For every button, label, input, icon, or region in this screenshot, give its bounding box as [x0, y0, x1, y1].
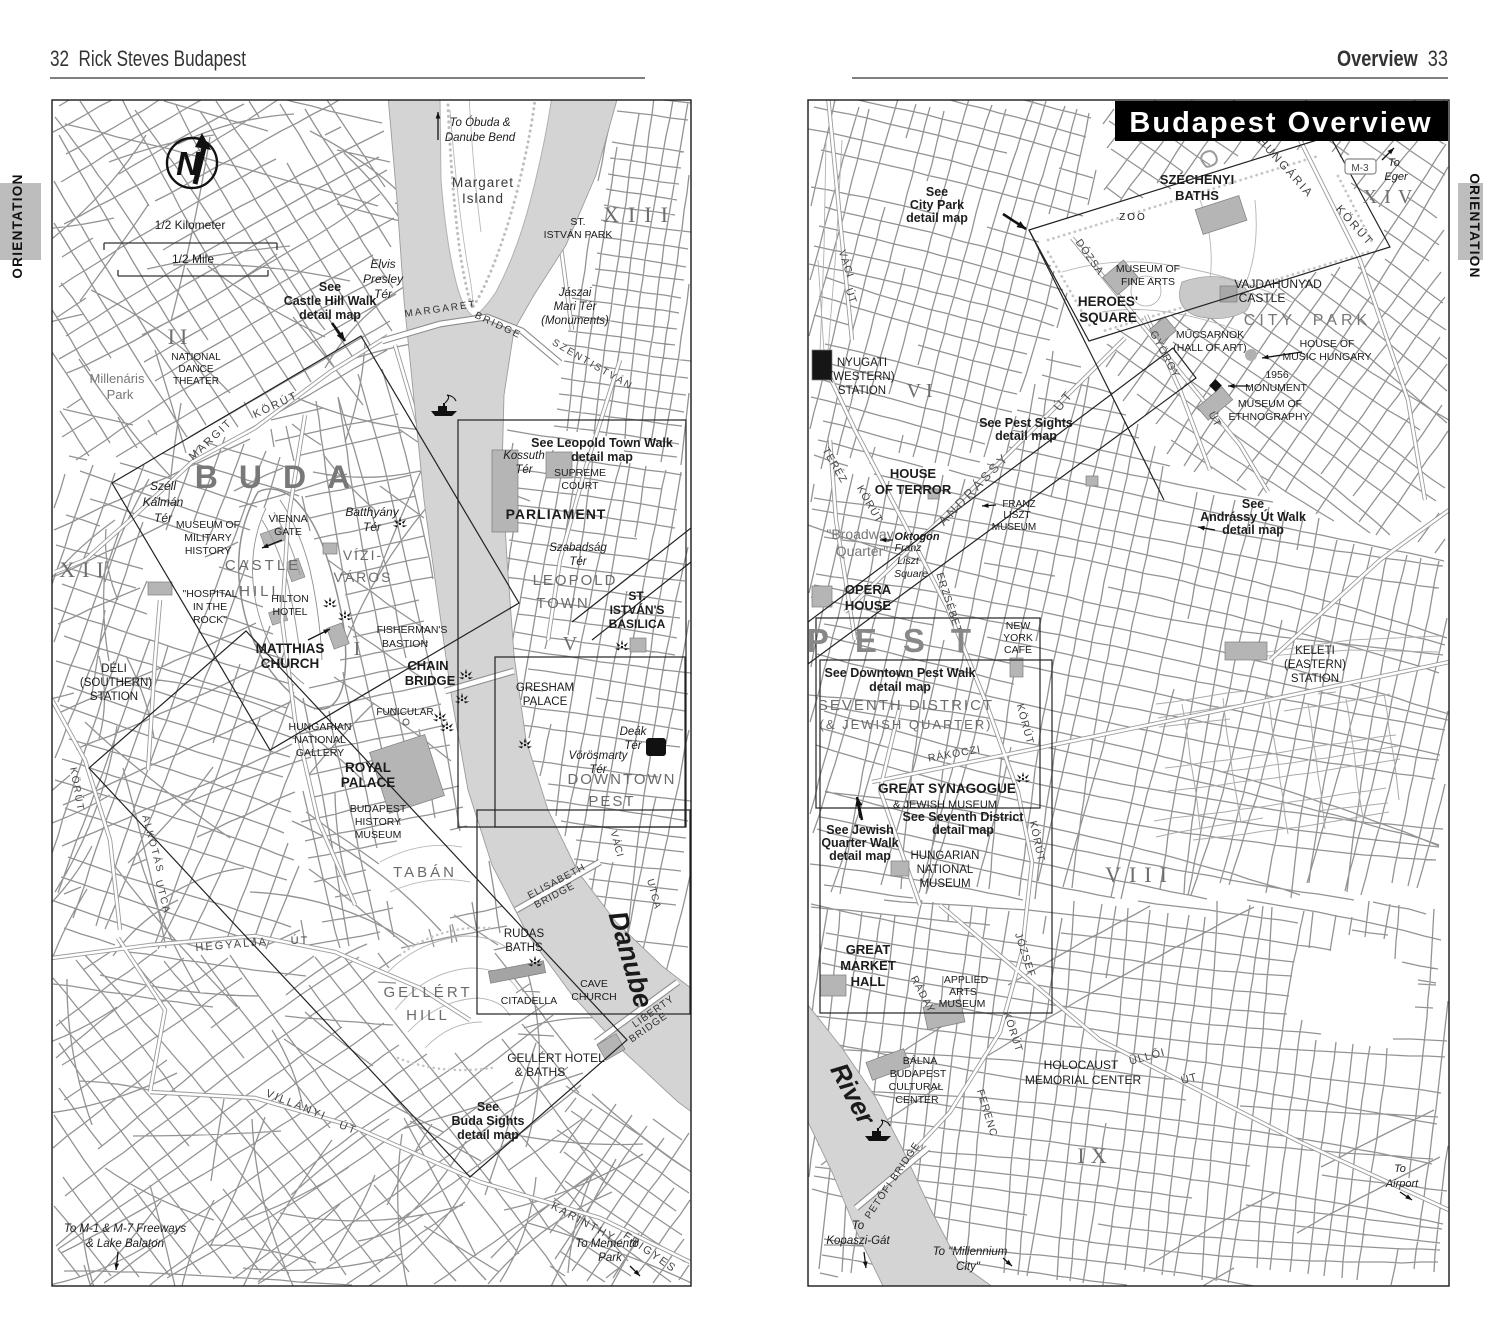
svg-text:BÁLNA: BÁLNA — [903, 1054, 937, 1067]
svg-text:CHURCH: CHURCH — [571, 991, 617, 1003]
svg-text:HUNGARIAN: HUNGARIAN — [910, 850, 979, 862]
svg-text:HILL: HILL — [406, 1007, 450, 1024]
svg-text:NEW: NEW — [1006, 620, 1031, 632]
svg-text:HOTEL: HOTEL — [272, 606, 307, 618]
svg-text:HALL: HALL — [851, 974, 886, 989]
svg-text:detail map: detail map — [906, 211, 968, 225]
svg-text:CAVE: CAVE — [580, 978, 608, 990]
svg-text:ST.: ST. — [628, 589, 645, 603]
svg-text:MUSEUM: MUSEUM — [939, 998, 986, 1010]
svg-text:VAJDAHUNYAD: VAJDAHUNYAD — [1234, 277, 1322, 291]
svg-text:BASILICA: BASILICA — [609, 617, 666, 631]
svg-text:detail map: detail map — [1222, 523, 1284, 537]
svg-text:XIII: XIII — [603, 202, 677, 227]
svg-text:(Monuments): (Monuments) — [541, 315, 609, 327]
svg-text:GRESHAM: GRESHAM — [516, 682, 574, 694]
svg-text:To "Millennium: To "Millennium — [933, 1246, 1008, 1258]
svg-text:BUDAPEST: BUDAPEST — [890, 1068, 947, 1080]
svg-text:1956: 1956 — [1265, 369, 1289, 381]
svg-text:BUDA: BUDA — [195, 459, 371, 495]
svg-text:TOWN: TOWN — [536, 595, 590, 612]
svg-text:FUNICULAR: FUNICULAR — [376, 707, 433, 718]
svg-text:HOUSE OF: HOUSE OF — [1300, 338, 1355, 350]
svg-text:detail map: detail map — [829, 849, 891, 863]
svg-text:BASTION: BASTION — [382, 638, 428, 650]
svg-text:1/2 Mile: 1/2 Mile — [172, 252, 214, 266]
svg-text:See Seventh District: See Seventh District — [903, 810, 1025, 824]
svg-text:VI: VI — [906, 380, 937, 402]
svg-text:See: See — [1242, 497, 1264, 511]
svg-text:STATION: STATION — [90, 691, 138, 703]
svg-text:VÍZI-: VÍZI- — [343, 547, 383, 563]
svg-text:OF TERROR: OF TERROR — [875, 482, 952, 497]
svg-text:& Lake Balaton: & Lake Balaton — [86, 1238, 164, 1250]
svg-text:Jászai: Jászai — [558, 287, 592, 299]
svg-text:APPLIED: APPLIED — [944, 974, 989, 986]
svg-text:(EASTERN): (EASTERN) — [1284, 659, 1346, 671]
svg-text:Kossuth: Kossuth — [503, 450, 545, 462]
svg-text:MUSEUM OF: MUSEUM OF — [1116, 263, 1180, 275]
svg-text:ARTS: ARTS — [949, 986, 977, 998]
svg-text:(SOUTHERN): (SOUTHERN) — [80, 677, 152, 689]
svg-text:Budapest Overview: Budapest Overview — [1129, 107, 1432, 139]
svg-text:PALACE: PALACE — [341, 775, 396, 790]
svg-text:Liszt: Liszt — [897, 555, 920, 567]
svg-text:See: See — [477, 1100, 499, 1114]
svg-text:ROCK": ROCK" — [193, 614, 227, 626]
svg-text:Vörösmarty: Vörösmarty — [569, 750, 629, 762]
svg-text:To Memento: To Memento — [575, 1238, 639, 1250]
svg-text:CITY: CITY — [1244, 312, 1296, 329]
svg-text:M-3: M-3 — [1351, 163, 1369, 174]
svg-text:detail map: detail map — [299, 308, 361, 322]
svg-text:V: V — [563, 633, 578, 655]
svg-text:HUNGARIAN: HUNGARIAN — [288, 721, 351, 733]
svg-text:STATION: STATION — [1291, 673, 1339, 685]
svg-text:GELLÉRT: GELLÉRT — [383, 984, 472, 1001]
svg-text:MEMORIAL CENTER: MEMORIAL CENTER — [1025, 1073, 1142, 1087]
svg-text:GATE: GATE — [274, 526, 302, 538]
svg-text:MARKET: MARKET — [840, 958, 896, 973]
svg-text:1/2 Kilometer: 1/2 Kilometer — [155, 218, 226, 232]
svg-text:Kálmán: Kálmán — [143, 495, 184, 509]
svg-text:MUSEUM OF: MUSEUM OF — [1238, 398, 1302, 410]
svg-text:To: To — [1388, 157, 1400, 169]
svg-text:See: See — [319, 280, 341, 294]
svg-text:MUSEUM: MUSEUM — [992, 522, 1036, 533]
svg-text:THEATER: THEATER — [173, 376, 219, 387]
svg-text:FINE ARTS: FINE ARTS — [1121, 276, 1175, 288]
svg-text:(HALL OF ART): (HALL OF ART) — [1173, 342, 1247, 354]
svg-text:MUSEUM OF: MUSEUM OF — [176, 519, 240, 531]
svg-text:CHAIN: CHAIN — [407, 658, 448, 673]
svg-text:BATHS: BATHS — [1175, 188, 1219, 203]
svg-text:To: To — [852, 1220, 865, 1232]
svg-text:Park: Park — [598, 1252, 623, 1264]
svg-text:detail map: detail map — [995, 429, 1057, 443]
svg-text:32 Rick Steves Budapest: 32 Rick Steves Budapest — [50, 46, 246, 71]
svg-text:ORIENTATION: ORIENTATION — [10, 173, 25, 278]
svg-text:FISHERMAN'S: FISHERMAN'S — [377, 624, 448, 636]
svg-text:detail map: detail map — [571, 450, 633, 464]
svg-text:Kopaszi-Gát: Kopaszi-Gát — [826, 1235, 890, 1247]
svg-text:CENTER: CENTER — [895, 1094, 939, 1106]
svg-text:(& JEWISH QUARTER): (& JEWISH QUARTER) — [820, 717, 993, 732]
svg-text:HOUSE: HOUSE — [890, 466, 937, 481]
svg-text:BUDAPEST: BUDAPEST — [350, 803, 407, 815]
svg-text:I: I — [354, 638, 361, 660]
svg-text:Andrássy Út Walk: Andrássy Út Walk — [1200, 509, 1306, 524]
svg-text:LISZT: LISZT — [1003, 510, 1030, 521]
svg-text:OPERA: OPERA — [845, 582, 892, 597]
svg-text:ETHNOGRAPHY: ETHNOGRAPHY — [1228, 411, 1309, 423]
svg-text:Eger: Eger — [1384, 171, 1409, 183]
svg-text:STATION: STATION — [838, 385, 886, 397]
svg-text:Quarter Walk: Quarter Walk — [821, 836, 898, 850]
svg-text:GREAT SYNAGOGUE: GREAT SYNAGOGUE — [878, 781, 1016, 796]
svg-text:XII: XII — [59, 557, 111, 582]
svg-text:ZOO: ZOO — [1119, 212, 1147, 223]
svg-text:& BATHS: & BATHS — [515, 1065, 565, 1079]
svg-text:Island: Island — [462, 191, 504, 206]
svg-text:SZÉCHENYI: SZÉCHENYI — [1160, 172, 1234, 187]
svg-text:HOUSE: HOUSE — [845, 598, 892, 613]
svg-text:VIII: VIII — [1105, 862, 1175, 887]
svg-text:TABÁN: TABÁN — [393, 864, 457, 881]
svg-text:COURT: COURT — [561, 480, 599, 492]
svg-text:KELETI: KELETI — [1295, 645, 1335, 657]
svg-text:To M-1 & M-7 Freeways: To M-1 & M-7 Freeways — [64, 1223, 187, 1235]
svg-text:IN THE: IN THE — [193, 601, 227, 613]
svg-text:CULTURAL: CULTURAL — [889, 1081, 944, 1093]
svg-text:See Pest Sights: See Pest Sights — [979, 416, 1073, 430]
svg-text:ORIENTATION: ORIENTATION — [1467, 173, 1482, 278]
svg-text:Deák: Deák — [620, 726, 648, 738]
svg-text:Elvis: Elvis — [370, 257, 395, 271]
svg-text:City": City" — [956, 1261, 981, 1273]
svg-text:SQUARE: SQUARE — [1079, 310, 1137, 325]
svg-text:Danube Bend: Danube Bend — [445, 132, 516, 144]
svg-text:LEOPOLD: LEOPOLD — [533, 572, 618, 589]
svg-text:Airport: Airport — [1385, 1178, 1419, 1190]
svg-text:NATIONAL: NATIONAL — [294, 734, 346, 746]
svg-text:See Leopold Town Walk: See Leopold Town Walk — [531, 436, 673, 450]
svg-text:CASTLE: CASTLE — [1239, 291, 1286, 305]
svg-text:HISTORY: HISTORY — [355, 816, 401, 828]
svg-text:II: II — [168, 324, 193, 349]
svg-text:PARLIAMENT: PARLIAMENT — [506, 506, 607, 522]
svg-text:See Downtown Pest Walk: See Downtown Pest Walk — [825, 666, 976, 680]
svg-text:NATIONAL: NATIONAL — [171, 352, 221, 363]
svg-text:PARK: PARK — [1313, 312, 1371, 329]
svg-text:MŰCSARNOK: MŰCSARNOK — [1176, 327, 1244, 341]
svg-text:detail map: detail map — [932, 823, 994, 837]
svg-text:NATIONAL: NATIONAL — [917, 864, 974, 876]
svg-text:MUSEUM: MUSEUM — [355, 829, 402, 841]
svg-text:(WESTERN): (WESTERN) — [829, 371, 894, 383]
svg-text:Tér: Tér — [569, 556, 587, 568]
svg-text:IX: IX — [1077, 1143, 1112, 1168]
svg-text:Margaret: Margaret — [452, 175, 514, 190]
svg-text:Tér: Tér — [374, 287, 393, 301]
svg-text:PALACE: PALACE — [523, 696, 568, 708]
svg-text:YORK: YORK — [1003, 632, 1033, 644]
svg-text:ISTVÁN PARK: ISTVÁN PARK — [544, 228, 613, 241]
svg-text:Batthyány: Batthyány — [345, 505, 399, 519]
svg-text:VIENNA: VIENNA — [268, 513, 307, 525]
svg-text:CITADELLA: CITADELLA — [501, 995, 557, 1007]
svg-text:Presley: Presley — [363, 272, 404, 286]
svg-text:NYUGATI: NYUGATI — [837, 357, 887, 369]
svg-text:Overview 33: Overview 33 — [1337, 46, 1448, 71]
svg-text:DÉLI: DÉLI — [101, 662, 127, 675]
svg-text:detail map: detail map — [457, 1128, 519, 1142]
svg-text:GELLÉRT HOTEL: GELLÉRT HOTEL — [507, 1050, 605, 1065]
svg-text:To: To — [1394, 1163, 1406, 1175]
svg-text:HOLOCAUST: HOLOCAUST — [1044, 1058, 1119, 1072]
svg-text:GALLERY: GALLERY — [296, 747, 344, 759]
svg-text:Tér: Tér — [363, 520, 382, 534]
svg-text:"HOSPITAL: "HOSPITAL — [183, 588, 238, 600]
svg-text:Buda Sights: Buda Sights — [452, 1114, 525, 1128]
svg-text:PEST: PEST — [807, 622, 997, 659]
svg-text:See Jewish: See Jewish — [826, 823, 893, 837]
svg-text:MUSEUM: MUSEUM — [919, 878, 970, 890]
svg-text:Castle Hill Walk: Castle Hill Walk — [284, 294, 377, 308]
svg-text:MONUMENT: MONUMENT — [1245, 382, 1307, 394]
svg-text:SUPREME: SUPREME — [554, 467, 606, 479]
svg-text:GREAT: GREAT — [846, 942, 891, 957]
svg-text:CASTLE: CASTLE — [225, 557, 301, 574]
svg-text:To Óbuda &: To Óbuda & — [450, 116, 511, 129]
svg-text:Szabadság: Szabadság — [549, 542, 607, 554]
svg-text:Millenáris: Millenáris — [90, 371, 145, 386]
svg-text:XIV: XIV — [1363, 186, 1420, 208]
svg-text:See: See — [926, 185, 948, 199]
svg-text:SEVENTH DISTRICT: SEVENTH DISTRICT — [818, 697, 994, 714]
svg-text:Széll: Széll — [150, 479, 176, 493]
svg-text:Square: Square — [894, 568, 928, 580]
svg-text:CHURCH: CHURCH — [261, 656, 320, 671]
svg-text:HILTON: HILTON — [271, 593, 309, 605]
svg-text:ÚT: ÚT — [291, 934, 310, 947]
svg-text:DANCE: DANCE — [178, 364, 213, 375]
svg-text:Quarter": Quarter" — [836, 543, 888, 559]
svg-text:ST.: ST. — [570, 216, 585, 228]
svg-text:MILITARY: MILITARY — [184, 532, 231, 544]
svg-text:BRIDGE: BRIDGE — [405, 673, 456, 688]
svg-text:HEROES': HEROES' — [1078, 294, 1138, 309]
svg-text:PEST: PEST — [588, 793, 635, 810]
svg-text:Mari Tér: Mari Tér — [554, 301, 598, 313]
svg-text:DOWNTOWN: DOWNTOWN — [567, 771, 676, 788]
svg-text:City Park: City Park — [910, 198, 964, 212]
svg-text:Franz: Franz — [895, 542, 923, 554]
svg-text:VÁROS: VÁROS — [333, 569, 392, 585]
svg-text:Tér: Tér — [154, 511, 173, 525]
svg-text:Tér: Tér — [515, 464, 533, 476]
svg-text:FRANZ: FRANZ — [1002, 499, 1035, 510]
svg-text:ROYAL: ROYAL — [345, 760, 391, 775]
svg-text:RUDAS: RUDAS — [504, 928, 545, 940]
svg-text:HISTORY: HISTORY — [185, 545, 231, 557]
svg-text:Park: Park — [107, 387, 134, 402]
svg-text:BATHS: BATHS — [505, 942, 543, 954]
svg-text:MATTHIAS: MATTHIAS — [256, 641, 325, 656]
svg-text:CAFE: CAFE — [1004, 644, 1032, 656]
svg-text:detail map: detail map — [869, 680, 931, 694]
svg-text:ISTVÁN'S: ISTVÁN'S — [610, 602, 665, 617]
